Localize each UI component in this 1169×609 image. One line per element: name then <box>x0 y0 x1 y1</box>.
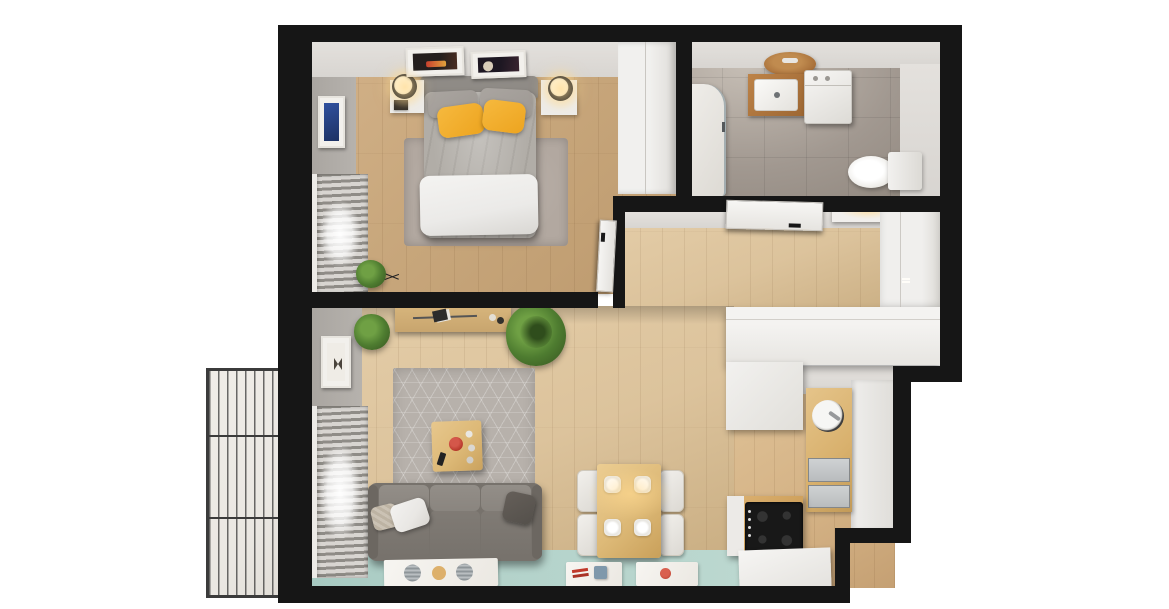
sofa-back-cushion <box>430 485 480 511</box>
door-handle <box>601 233 605 242</box>
kitchen-cabinet-row <box>726 307 941 365</box>
steel-sink-unit <box>808 458 850 482</box>
console-shelf <box>395 306 511 332</box>
hallway-wardrobe <box>880 212 940 312</box>
remote-control <box>437 452 447 466</box>
faucet <box>774 92 780 98</box>
dark-cushion <box>501 490 537 526</box>
coffee-table <box>431 420 483 472</box>
blue-wall-art <box>318 96 345 148</box>
dining-chair <box>659 470 684 512</box>
console-deco-card <box>432 309 448 323</box>
stove-white-edge <box>727 496 744 556</box>
cooktop-control-dot <box>748 510 751 513</box>
plate <box>634 476 651 493</box>
mat-food-bowl <box>660 568 671 579</box>
steel-drainer-unit <box>808 485 850 508</box>
bedroom-wardrobe <box>618 42 676 194</box>
sofa <box>368 483 542 561</box>
floor-mat-1 <box>384 558 498 588</box>
living-wall-art <box>321 336 351 388</box>
mat-deco-circle <box>404 564 421 581</box>
art-canvas <box>324 103 339 141</box>
shower-glass-handle <box>722 122 725 132</box>
wardrobe-handle <box>902 278 910 280</box>
yellow-pillow-left <box>436 102 486 139</box>
plant-inner-fronds <box>520 316 552 348</box>
wardrobe-seam <box>645 42 646 194</box>
floor-mat-3 <box>636 562 698 586</box>
art-accent <box>426 61 446 68</box>
living-window-blinds <box>310 406 368 578</box>
washbasin <box>754 79 798 111</box>
floor-mat-2 <box>566 562 622 587</box>
wall-north <box>278 25 962 42</box>
sofa-seat-cushion <box>430 511 480 557</box>
mirror-handle <box>782 58 798 63</box>
wardrobe-seam <box>900 212 901 312</box>
washer-panel-line <box>805 85 851 86</box>
white-blanket <box>419 174 538 236</box>
table-lamp-left <box>392 74 417 99</box>
table-lamp-right <box>548 76 573 101</box>
plate <box>604 476 621 493</box>
door-handle <box>789 223 801 227</box>
wall-east-mid <box>893 366 911 536</box>
wall-west <box>278 25 312 603</box>
cabinet-seam <box>726 319 941 320</box>
book-stack <box>394 100 408 110</box>
console-jar <box>489 314 496 321</box>
plate <box>634 519 651 536</box>
red-vase <box>449 437 463 451</box>
mat-deco-circle <box>432 566 446 580</box>
plate <box>604 519 621 536</box>
kitchen-cabinet-block <box>726 362 803 430</box>
mat-chopsticks <box>572 568 588 573</box>
washer-control-dot <box>813 76 818 81</box>
wall-south <box>278 586 850 603</box>
bedroom-plant-stand <box>356 258 400 292</box>
wall-bedroom-bathroom <box>676 25 692 212</box>
bedroom-wall-art-1 <box>406 46 465 77</box>
coffee-cup <box>465 430 472 437</box>
bedroom-plant <box>356 260 386 288</box>
mat-cup <box>594 566 607 579</box>
wall-east-lower <box>835 528 850 603</box>
yellow-pillow-right <box>481 99 526 135</box>
cooktop <box>745 502 803 554</box>
kitchen-counter-right <box>851 380 893 530</box>
dining-table <box>597 464 661 558</box>
mat-deco-circle <box>456 563 473 580</box>
wall-bedroom-south <box>290 292 598 308</box>
tall-plant <box>506 304 566 366</box>
hallway-open-door-panel <box>726 200 824 232</box>
toilet-tank <box>888 152 922 190</box>
washer-control-dot <box>825 76 830 81</box>
dining-chair <box>659 514 684 556</box>
floor-plan-render <box>0 0 1169 609</box>
small-plant <box>354 314 390 350</box>
bedroom-wall-art-2 <box>471 50 527 79</box>
washing-machine <box>804 70 852 124</box>
